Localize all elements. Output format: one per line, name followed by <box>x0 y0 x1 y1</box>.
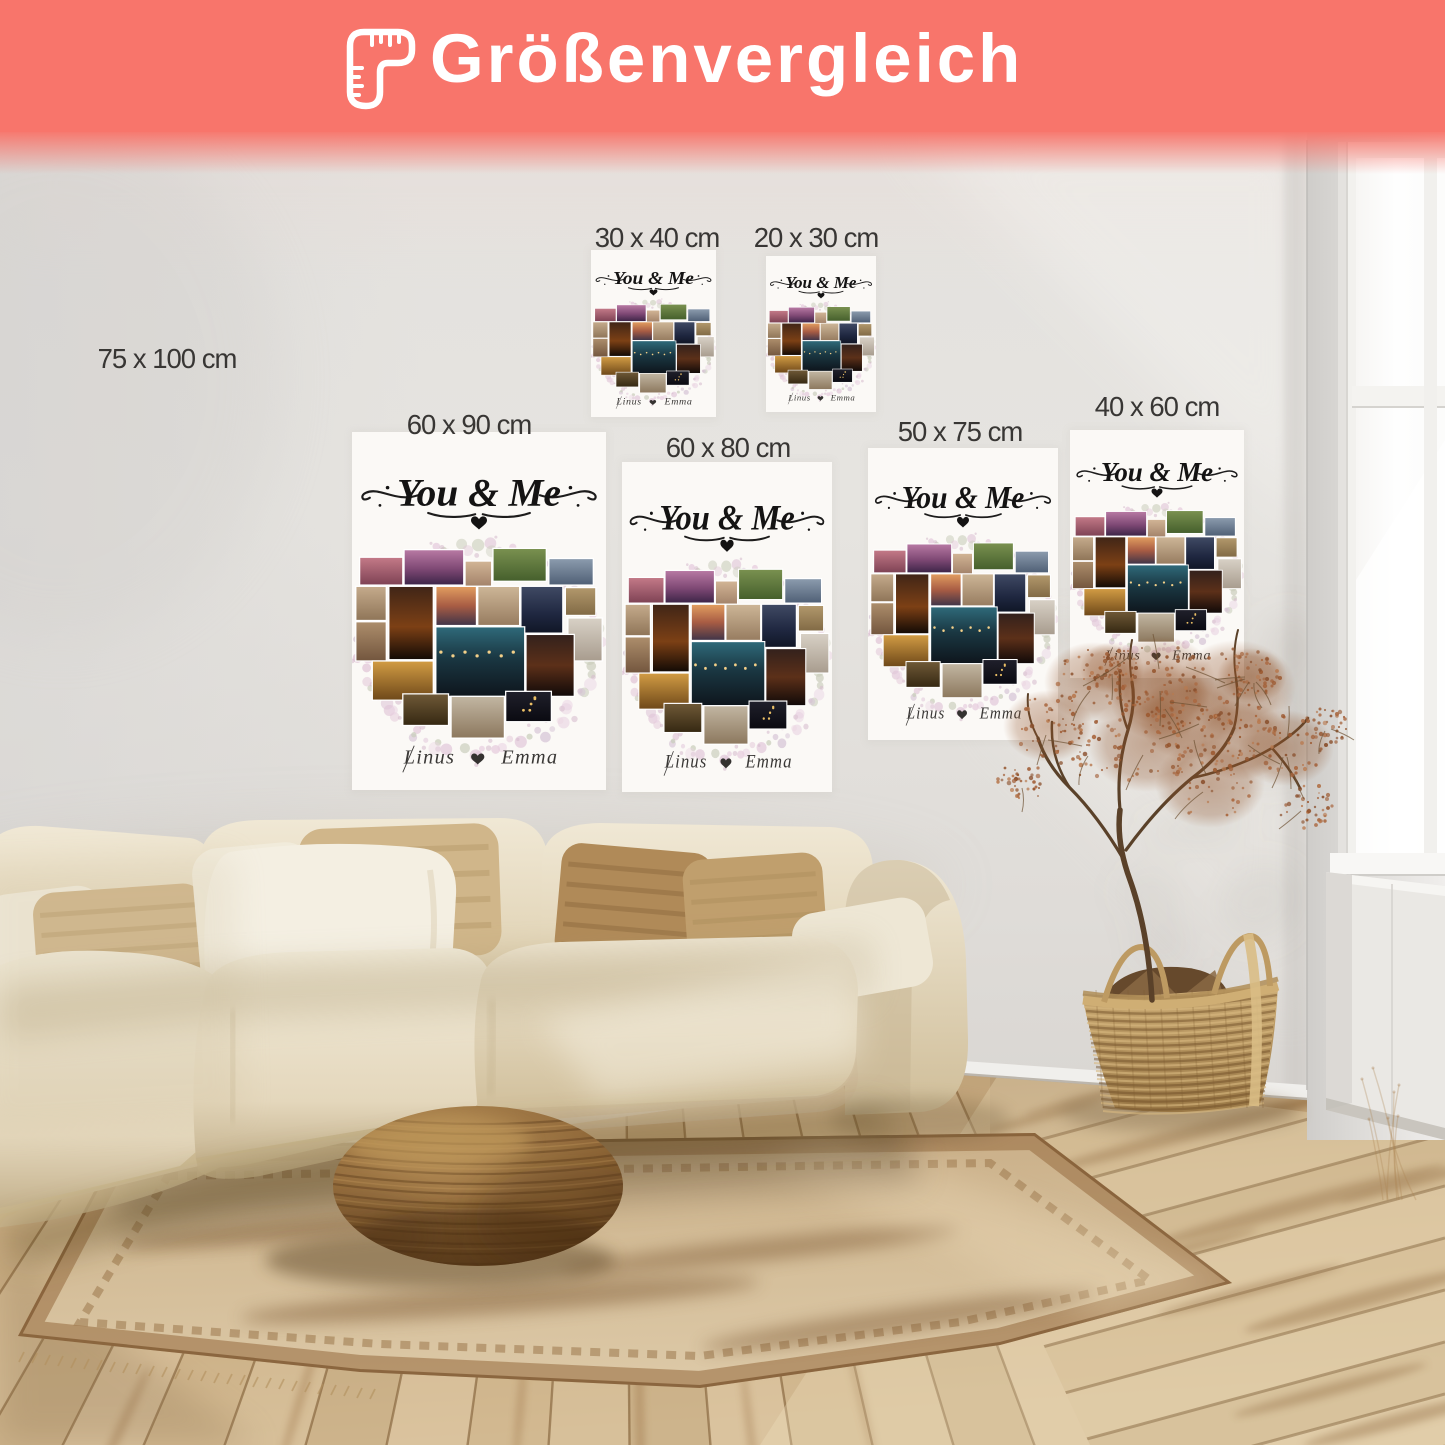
svg-text:75 x 100 cm: 75 x 100 cm <box>98 343 237 374</box>
svg-text:40 x 60 cm: 40 x 60 cm <box>1095 391 1220 422</box>
svg-text:Größenvergleich: Größenvergleich <box>430 20 1023 97</box>
svg-text:60 x 80 cm: 60 x 80 cm <box>666 432 791 463</box>
svg-text:20 x 30 cm: 20 x 30 cm <box>754 222 879 253</box>
svg-text:50 x 75 cm: 50 x 75 cm <box>898 416 1023 447</box>
svg-text:30 x 40 cm: 30 x 40 cm <box>595 222 720 253</box>
svg-text:60 x 90 cm: 60 x 90 cm <box>407 409 532 440</box>
